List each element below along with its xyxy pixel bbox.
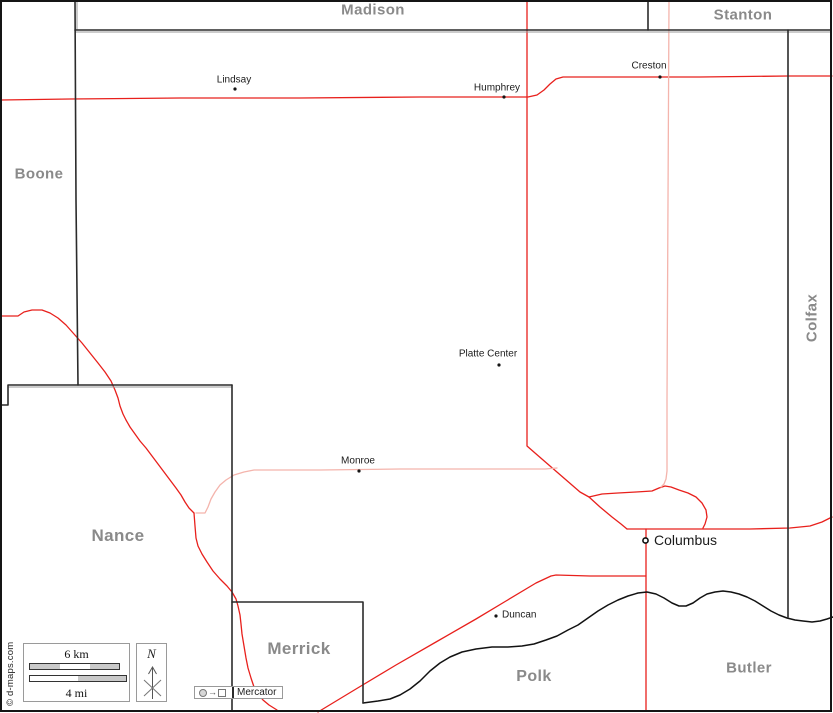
projection-box: → Mercator — [194, 686, 283, 699]
county-label-boone: Boone — [15, 166, 64, 183]
road-columbus-east — [627, 517, 832, 529]
scale-segment — [30, 664, 60, 669]
county-label-polk: Polk — [516, 668, 551, 686]
county-label-butler: Butler — [726, 660, 772, 677]
town-dot-marker — [502, 95, 505, 98]
projection-label: Mercator — [237, 687, 276, 699]
city-ring-marker — [643, 538, 648, 543]
town-dot-marker — [233, 87, 236, 90]
town-dot-marker — [658, 75, 661, 78]
scale-bar-km — [29, 663, 120, 670]
scale-bar-box: 6 km 4 mi — [23, 643, 130, 702]
scale-segment — [30, 676, 78, 681]
road-south-nance — [194, 513, 277, 710]
map-frame — [1, 1, 831, 711]
county-line-through-box — [232, 687, 234, 698]
county-label-nance: Nance — [91, 526, 144, 546]
river-line — [363, 591, 833, 703]
globe-circle-icon — [199, 689, 207, 697]
road-northwest — [0, 310, 194, 513]
compass-rose-icon — [137, 662, 168, 702]
projected-square-icon — [218, 689, 226, 697]
town-label-creston: Creston — [631, 61, 666, 72]
scale-segment — [78, 676, 126, 681]
scale-bar-mi — [29, 675, 127, 682]
scale-segment — [90, 664, 119, 669]
town-label-duncan: Duncan — [502, 610, 536, 621]
town-label-monroe: Monroe — [341, 456, 375, 467]
town-label-platte-center: Platte Center — [459, 349, 517, 360]
boundary-boone-east — [75, 1, 78, 385]
town-label-lindsay: Lindsay — [217, 75, 251, 86]
town-dot-marker — [357, 469, 360, 472]
road-duncan — [318, 575, 646, 712]
north-label: N — [137, 646, 166, 662]
road-loop-north-columbus — [589, 486, 707, 528]
scale-km-label: 6 km — [24, 647, 129, 662]
map-svg — [0, 0, 833, 713]
map-canvas: MadisonStantonBooneColfaxNanceMerrickPol… — [0, 0, 833, 713]
copyright-text: © d-maps.com — [5, 642, 16, 706]
road-north-highway — [1, 76, 832, 100]
road-humphrey-columbus — [527, 1, 627, 529]
county-label-colfax: Colfax — [804, 294, 821, 342]
scale-segment — [60, 664, 90, 669]
county-label-merrick: Merrick — [267, 639, 330, 659]
town-label-columbus: Columbus — [654, 532, 717, 548]
county-label-stanton: Stanton — [714, 7, 773, 24]
projection-arrow-icon: → — [208, 687, 217, 698]
north-arrow-box: N — [136, 643, 167, 702]
road-monroe — [196, 468, 557, 513]
scale-mi-label: 4 mi — [24, 686, 129, 701]
road-creston-vertical — [661, 1, 669, 487]
town-dot-marker — [494, 614, 497, 617]
county-label-madison: Madison — [341, 2, 405, 19]
town-label-humphrey: Humphrey — [474, 83, 520, 94]
town-dot-marker — [497, 363, 500, 366]
